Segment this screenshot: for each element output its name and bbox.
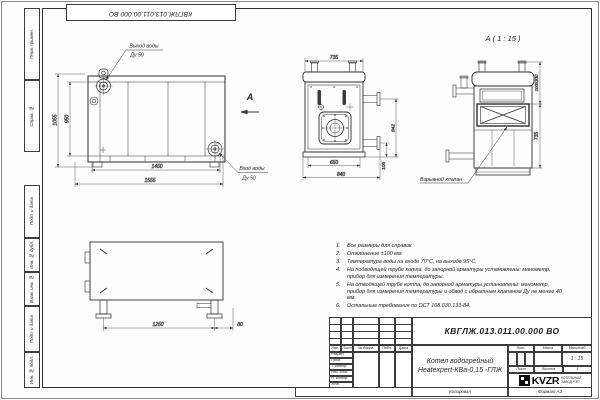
front-right-pipes — [363, 93, 380, 150]
inlet-label-2: Ду 50 — [241, 176, 256, 182]
svg-text:105: 105 — [381, 162, 387, 170]
mass-header: Масса — [534, 345, 562, 352]
dim-front-top: 735 — [305, 55, 363, 72]
inlet-callout: Вход воды Ду 50 — [219, 153, 268, 182]
sheets-cell: Листов — [534, 366, 563, 373]
left-foot — [93, 162, 102, 167]
title-block: КВГЛЖ.013.011.00.000 ВО Изм. Лист № доку… — [329, 317, 592, 388]
burner-door — [319, 112, 351, 144]
svg-text:1055: 1055 — [53, 114, 59, 125]
dim-side-width-outer: 1555 — [75, 156, 223, 187]
scale-value-cell: 1 : 15 — [562, 352, 592, 366]
product-name-line2: Heatexpert-КВа-0,15 -ГЛЖ — [418, 367, 502, 376]
view-front — [303, 61, 380, 157]
dim-front-bottom-outer: 840 — [303, 150, 380, 180]
view-arrow-letter: А — [246, 92, 254, 102]
svg-text:840: 840 — [337, 172, 346, 178]
dim-detail-height: 735 — [534, 104, 540, 168]
col-podp: Подп. — [379, 345, 395, 352]
left-slot — [318, 90, 322, 105]
svg-text:650: 650 — [330, 160, 339, 166]
dim-side-width-inner: 1450 — [92, 156, 220, 173]
outlet-label-2: Ду 50 — [129, 53, 144, 59]
view-detail-a — [446, 61, 534, 175]
company-logo-cell: KVZR КОТЕЛЬНЫЙ ЗАВОД РЭП — [508, 373, 592, 388]
dim-side-height-outer: 1055 — [53, 74, 94, 167]
svg-text:1450: 1450 — [151, 164, 162, 170]
kvzr-logo-icon — [519, 375, 530, 386]
dim-front-right-lower: 105 — [380, 143, 389, 170]
col-dokum: № докум. — [353, 345, 379, 352]
dim-side-height-inner: 950 — [65, 82, 89, 156]
note-6: 6.Остальные требования по ОСТ 108.030.13… — [336, 303, 564, 310]
outlet-label-1: Выход воды — [129, 44, 158, 50]
col-izm: Изм. — [329, 345, 341, 352]
detail-left-pipes — [446, 76, 474, 162]
svg-text:735: 735 — [330, 55, 339, 61]
svg-text:80: 80 — [237, 322, 243, 328]
view-side-elevation — [88, 69, 225, 167]
note-4: 4.На подводящей трубе котла, до запорной… — [336, 267, 564, 280]
door-hinge-flange — [90, 97, 98, 105]
right-foot — [210, 162, 219, 167]
kvzr-logo-text: KVZR — [532, 375, 559, 387]
svg-text:1250: 1250 — [152, 322, 163, 328]
svg-text:1555: 1555 — [144, 178, 155, 184]
col-list: Лист — [341, 345, 353, 352]
explosion-valve-label: Взрывной клапан — [420, 176, 462, 183]
lit-header: Лит. — [508, 345, 534, 352]
dim-front-bottom-inner: 650 — [308, 157, 360, 168]
sheets-value-cell: 1 — [563, 366, 592, 373]
kvzr-logo-caption: КОТЕЛЬНЫЙ ЗАВОД РЭП — [561, 377, 581, 384]
detail-view-title: А ( 1 : 15 ) — [484, 34, 521, 43]
inlet-label-1: Вход воды — [239, 166, 264, 172]
svg-text:950: 950 — [65, 115, 71, 124]
dim-front-right-upper: 842 — [365, 99, 399, 157]
mass-value-cell — [534, 352, 562, 366]
view-direction-arrow: А — [241, 92, 259, 112]
col-data: Дата — [395, 345, 412, 352]
dim-plan-length: 1250 — [104, 318, 215, 331]
copied-cell: Копировал — [412, 388, 508, 397]
view-plan — [85, 242, 223, 318]
svg-text:100х200: 100х200 — [534, 74, 539, 91]
scale-header: Масштаб — [562, 345, 592, 352]
outlet-callout: Выход воды Ду 50 — [106, 44, 163, 81]
sheet-cell: Лист — [508, 366, 534, 373]
note-1: 1.Все размеры для справок. — [336, 243, 564, 250]
svg-text:842: 842 — [391, 124, 397, 132]
notes-block: 1.Все размеры для справок. 2.Отклонение … — [336, 243, 564, 311]
svg-text:735: 735 — [534, 132, 540, 141]
product-name-line1: Котел водогрейный — [427, 358, 494, 367]
note-3: 3.Температура воды на входе 70°С, на вых… — [336, 259, 564, 266]
format-cell: Формат А3 — [508, 388, 592, 397]
product-name-cell: Котел водогрейный Heatexpert-КВа-0,15 -Г… — [412, 345, 508, 388]
dim-plan-offset: 80 — [215, 308, 243, 331]
note-2: 2.Отклонение ±100 мм. — [336, 251, 564, 258]
right-slot — [343, 90, 347, 105]
note-5: 5.На отводящей трубе котла, до запорной … — [336, 282, 564, 302]
explosion-valve — [477, 104, 529, 126]
doc-number-cell: КВГЛЖ.013.011.00.000 ВО — [412, 317, 592, 345]
